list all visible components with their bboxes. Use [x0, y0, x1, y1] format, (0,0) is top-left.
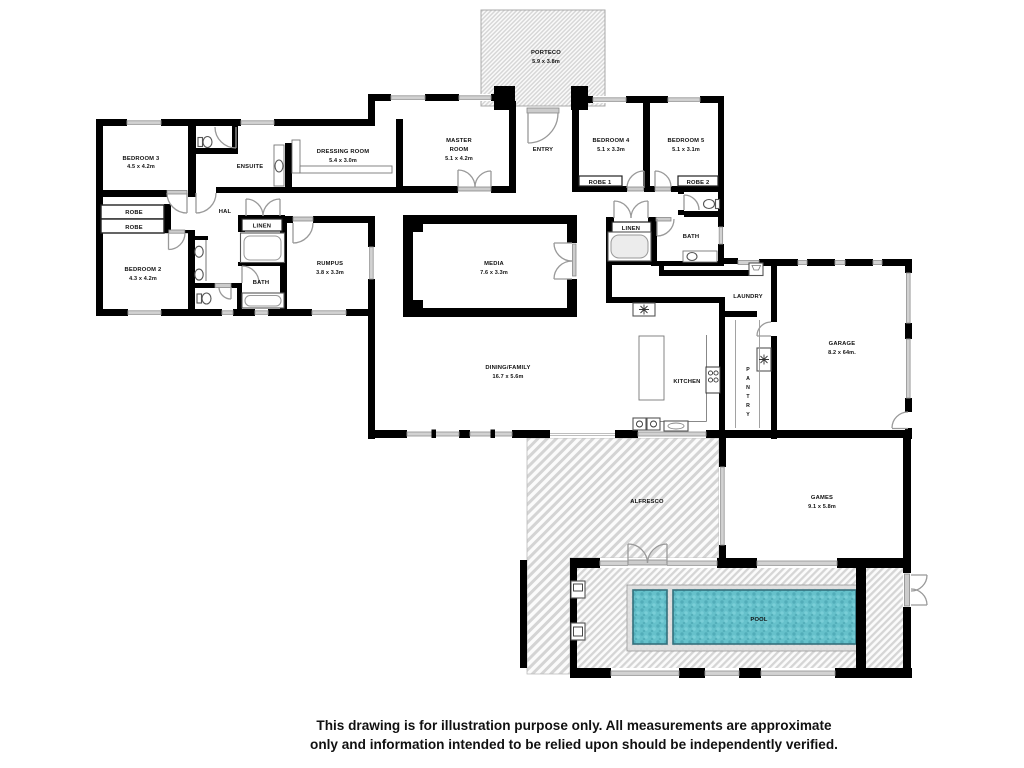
- svg-text:5.4 x 3.0m: 5.4 x 3.0m: [329, 158, 357, 164]
- svg-text:ROBE: ROBE: [125, 225, 143, 231]
- svg-text:BEDROOM 2: BEDROOM 2: [125, 267, 162, 273]
- svg-text:9.1 x 5.8m: 9.1 x 5.8m: [808, 504, 836, 510]
- svg-text:ROBE: ROBE: [125, 210, 143, 216]
- svg-text:16.7 x 5.6m: 16.7 x 5.6m: [492, 374, 523, 380]
- svg-text:A: A: [746, 376, 750, 382]
- svg-text:ENSUITE: ENSUITE: [237, 164, 264, 170]
- svg-text:LAUNDRY: LAUNDRY: [733, 294, 763, 300]
- svg-text:ENTRY: ENTRY: [533, 147, 553, 153]
- svg-text:RUMPUS: RUMPUS: [317, 261, 343, 267]
- svg-text:N: N: [746, 385, 750, 391]
- svg-text:ROBE 1: ROBE 1: [589, 180, 612, 186]
- svg-text:PORTECO: PORTECO: [531, 50, 561, 56]
- svg-text:Y: Y: [746, 412, 750, 418]
- svg-text:only and information intended: only and information intended to be reli…: [310, 737, 838, 752]
- svg-text:BEDROOM 4: BEDROOM 4: [593, 138, 630, 144]
- svg-text:4.3 x 4.2m: 4.3 x 4.2m: [129, 276, 157, 282]
- svg-text:This drawing is for illustrati: This drawing is for illustration purpose…: [316, 718, 832, 733]
- svg-text:3.8 x 3.3m: 3.8 x 3.3m: [316, 270, 344, 276]
- svg-text:7.6 x 3.3m: 7.6 x 3.3m: [480, 270, 508, 276]
- svg-text:MASTER: MASTER: [446, 138, 472, 144]
- svg-text:LINEN: LINEN: [622, 226, 640, 232]
- svg-text:DRESSING ROOM: DRESSING ROOM: [317, 149, 370, 155]
- svg-text:ALFRESCO: ALFRESCO: [630, 499, 664, 505]
- svg-text:DINING/FAMILY: DINING/FAMILY: [485, 365, 530, 371]
- svg-text:BEDROOM 3: BEDROOM 3: [123, 156, 160, 162]
- svg-text:P: P: [746, 367, 750, 373]
- svg-text:ROOM: ROOM: [450, 147, 469, 153]
- svg-text:BATH: BATH: [683, 234, 699, 240]
- svg-text:LINEN: LINEN: [253, 224, 271, 230]
- svg-text:BEDROOM 5: BEDROOM 5: [668, 138, 705, 144]
- svg-text:5.1 x 3.1m: 5.1 x 3.1m: [672, 147, 700, 153]
- svg-text:BATH: BATH: [253, 280, 269, 286]
- svg-text:5.1 x 4.2m: 5.1 x 4.2m: [445, 156, 473, 162]
- svg-text:KITCHEN: KITCHEN: [673, 379, 700, 385]
- svg-text:5.9 x 3.8m: 5.9 x 3.8m: [532, 59, 560, 65]
- svg-text:GAMES: GAMES: [811, 495, 833, 501]
- svg-text:POOL: POOL: [750, 617, 767, 623]
- svg-text:5.1 x 3.3m: 5.1 x 3.3m: [597, 147, 625, 153]
- svg-text:HAL: HAL: [219, 209, 232, 215]
- svg-text:ROBE 2: ROBE 2: [687, 180, 710, 186]
- svg-text:R: R: [746, 403, 750, 409]
- svg-text:4.5 x 4.2m: 4.5 x 4.2m: [127, 164, 155, 170]
- svg-text:GARAGE: GARAGE: [829, 341, 856, 347]
- svg-text:MEDIA: MEDIA: [484, 261, 504, 267]
- svg-text:8.2 x 64m.: 8.2 x 64m.: [828, 350, 856, 356]
